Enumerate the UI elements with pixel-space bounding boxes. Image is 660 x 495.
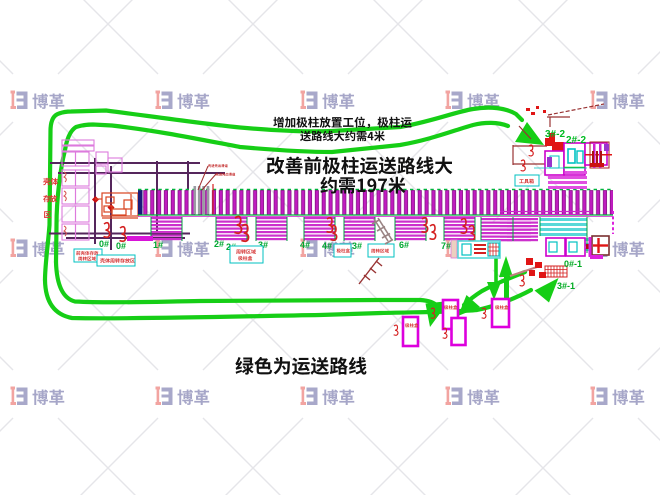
- svg-text:4#: 4#: [322, 241, 332, 251]
- svg-text:0#-1: 0#-1: [564, 259, 582, 269]
- svg-text:0#: 0#: [116, 241, 126, 251]
- svg-text:7#: 7#: [441, 241, 451, 251]
- svg-text:3#-2: 3#-2: [545, 129, 565, 140]
- svg-text:2#-2: 2#-2: [566, 135, 586, 146]
- svg-text:2#: 2#: [214, 239, 224, 249]
- svg-text:3#: 3#: [352, 241, 362, 251]
- svg-text:0#: 0#: [99, 239, 109, 249]
- svg-text:6#: 6#: [399, 240, 409, 250]
- svg-text:4#: 4#: [300, 240, 310, 250]
- svg-text:1#: 1#: [153, 240, 163, 250]
- svg-text:3#-1: 3#-1: [557, 281, 575, 291]
